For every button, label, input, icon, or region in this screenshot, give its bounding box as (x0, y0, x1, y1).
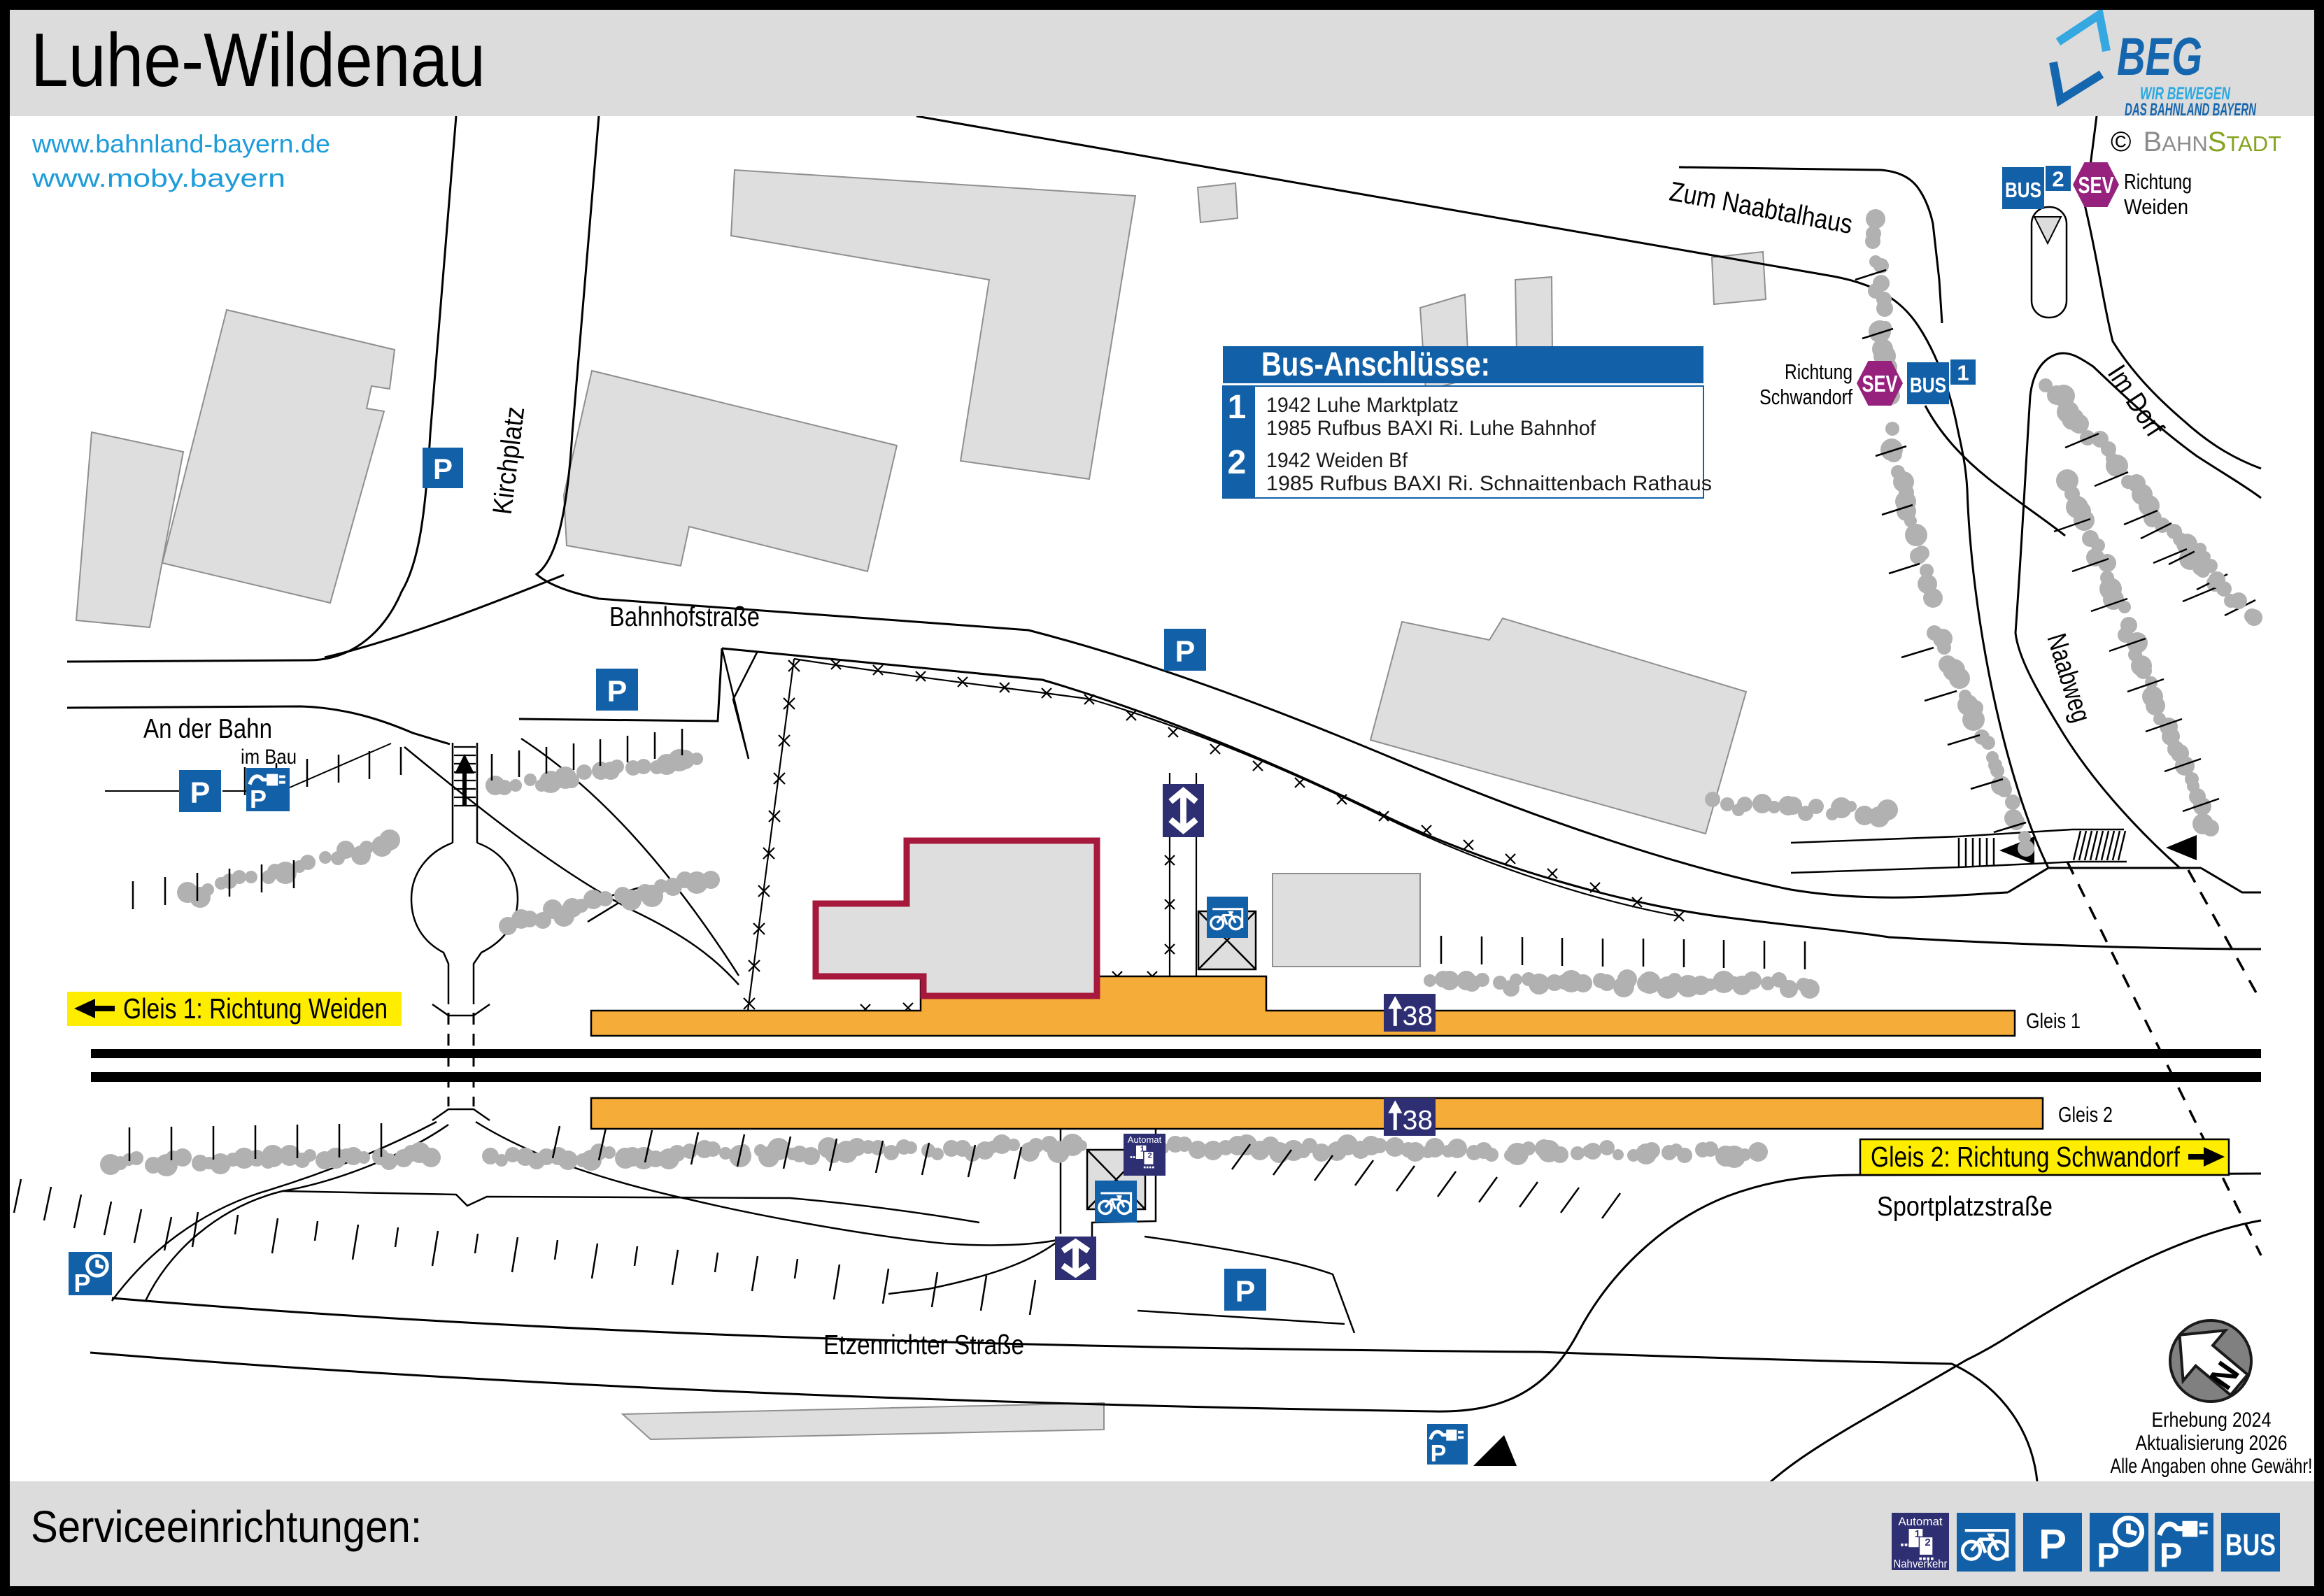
svg-text:© BAHNSTADT: © BAHNSTADT (2111, 127, 2281, 157)
svg-text:P: P (2097, 1537, 2120, 1574)
svg-text:www.moby.bayern: www.moby.bayern (31, 164, 285, 192)
svg-text:Gleis 1: Gleis 1 (2026, 1009, 2081, 1033)
svg-text:BEG: BEG (2117, 27, 2202, 87)
svg-text:SEV: SEV (2078, 172, 2114, 198)
svg-text:SEV: SEV (1862, 371, 1898, 397)
svg-text:Bus-Anschlüsse:: Bus-Anschlüsse: (1261, 346, 1490, 383)
svg-text:BUS: BUS (2005, 178, 2041, 202)
svg-text:Alle Angaben ohne Gewähr!: Alle Angaben ohne Gewähr! (2111, 1455, 2313, 1478)
svg-text:P: P (1175, 635, 1196, 669)
svg-text:38: 38 (1403, 1105, 1433, 1135)
svg-text:1942 Luhe Marktplatz: 1942 Luhe Marktplatz (1266, 394, 1459, 417)
svg-text:Aktualisierung 2026: Aktualisierung 2026 (2136, 1432, 2288, 1455)
svg-text:2: 2 (1148, 1151, 1152, 1160)
svg-text:1: 1 (1228, 389, 1247, 426)
svg-text:1985 Rufbus BAXI Ri. Schnaitte: 1985 Rufbus BAXI Ri. Schnaittenbach Rath… (1266, 472, 1712, 495)
svg-text:2: 2 (1925, 1537, 1930, 1548)
svg-text:RichtungWeiden: RichtungWeiden (2124, 169, 2192, 219)
svg-text:An der Bahn: An der Bahn (143, 714, 272, 744)
svg-text:P: P (250, 785, 267, 813)
svg-text:P: P (2160, 1537, 2183, 1574)
svg-text:Gleis 1: Richtung Weiden: Gleis 1: Richtung Weiden (123, 992, 388, 1025)
svg-text:www.bahnland-bayern.de: www.bahnland-bayern.de (31, 129, 330, 158)
svg-text:2: 2 (2052, 167, 2064, 192)
svg-text:Gleis 2: Gleis 2 (2058, 1102, 2113, 1127)
svg-text:1: 1 (1957, 361, 1969, 385)
svg-text:im Bau: im Bau (241, 746, 297, 769)
svg-text:P: P (1431, 1440, 1447, 1467)
svg-text:BUS: BUS (2225, 1527, 2276, 1562)
svg-text:2: 2 (1228, 444, 1247, 481)
svg-text:Etzenrichter Straße: Etzenrichter Straße (823, 1330, 1024, 1360)
svg-text:Bahnhofstraße: Bahnhofstraße (609, 602, 760, 632)
svg-text:1942 Weiden Bf: 1942 Weiden Bf (1266, 449, 1408, 472)
svg-text:38: 38 (1403, 1001, 1433, 1031)
svg-text:P: P (433, 453, 453, 485)
svg-text:P: P (1235, 1275, 1256, 1309)
svg-text:Automat: Automat (1898, 1515, 1943, 1528)
svg-text:Luhe-Wildenau: Luhe-Wildenau (31, 17, 486, 103)
svg-text:Automat: Automat (1128, 1134, 1162, 1145)
svg-text:Sportplatzstraße: Sportplatzstraße (1877, 1192, 2053, 1222)
svg-text:BUS: BUS (1910, 373, 1946, 397)
svg-text:Gleis 2: Richtung Schwandorf: Gleis 2: Richtung Schwandorf (1871, 1141, 2180, 1173)
svg-text:P: P (190, 776, 211, 810)
svg-text:P: P (607, 675, 628, 708)
svg-text:DAS BAHNLAND BAYERN: DAS BAHNLAND BAYERN (2125, 100, 2257, 120)
svg-text:Serviceeinrichtungen:: Serviceeinrichtungen: (31, 1502, 422, 1552)
svg-text:Erhebung 2024: Erhebung 2024 (2152, 1409, 2272, 1432)
svg-text:1985 Rufbus BAXI Ri. Luhe Bahn: 1985 Rufbus BAXI Ri. Luhe Bahnhof (1266, 417, 1596, 440)
svg-text:P: P (2039, 1521, 2067, 1568)
